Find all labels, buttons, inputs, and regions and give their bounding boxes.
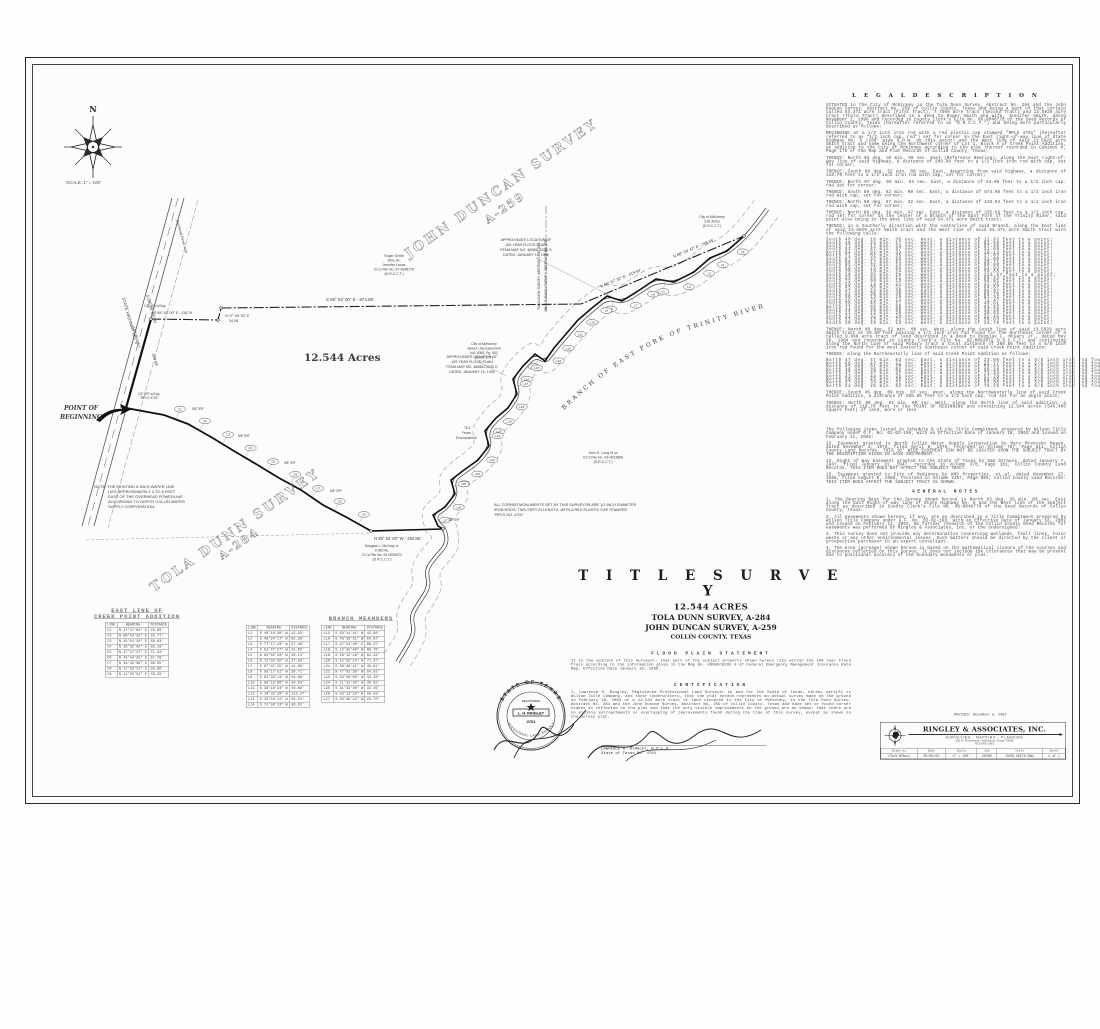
general-notes-heading: GENERAL NOTES	[826, 489, 1066, 494]
table-cell: S 81°32'14" W	[258, 675, 290, 681]
table-cell: N 45°01'20" E	[117, 639, 149, 645]
table-cell: N 84°02'33" W	[258, 653, 290, 659]
line-bubble-label: C1	[178, 407, 182, 411]
table-cell: S 23°54'11" W	[258, 697, 290, 703]
addition-calls: North 47 deg. 47 min. 03 sec. East, a di…	[826, 359, 1066, 388]
map-label: N 07° 05' 53" E	[225, 314, 250, 318]
line-bubble-label: L4	[687, 285, 691, 289]
table-cell: N 21°25'52" E	[117, 672, 149, 678]
table-cell: N 36°45'38" E	[117, 661, 149, 667]
paragraph: BEGINNING at a 1/2 inch iron rod with a …	[826, 132, 1066, 154]
company-name: RINGLEY & ASSOCIATES, INC.	[907, 726, 1063, 734]
paragraph: 14. Right of Way Easement granted to the…	[826, 459, 1066, 470]
table-cell: S 48°24'17" W	[258, 636, 290, 642]
survey-sheet: L1L2L3L4L5L6L7L8L9L10L11L12L13L14L15L16L…	[25, 57, 1080, 804]
schedule-b-intro: The following items listed in Schedule B…	[826, 428, 1066, 439]
map-label: Fence	[462, 431, 471, 435]
table-row: L14S 71°59'13" W56.81'	[246, 702, 309, 708]
line-bubble-label: L11	[578, 332, 583, 336]
company-phone: 972-542-1365	[907, 742, 1063, 745]
table-cell: N 47°37'27" E	[117, 650, 149, 656]
map-label: TOLA DUNN SURVEY, ABSTRACT NO. 284	[537, 243, 541, 310]
map-label: S 89° 52' 00" E - 118.79'	[154, 311, 193, 315]
map-label: IRON RODS, TWO FEET IN LENGTH, WITH A RE…	[494, 508, 628, 512]
table-cell: N 37°33'31" E	[117, 666, 149, 672]
revision-note: REVISED: December 5, 2002	[954, 713, 1100, 721]
table-cell: N 66°43'22" E	[117, 633, 149, 639]
meander-intro: THENCE: in a Southerly direction with th…	[826, 225, 1066, 236]
meanders-table-2: LINEBEARINGDISTANCEL15S 59°14'41" W42.96…	[322, 625, 386, 708]
paragraph: 3. This survey does not provide any dete…	[826, 533, 1066, 544]
paragraph: 2. All easements shown hereon, if any, a…	[826, 515, 1066, 529]
general-notes-items: 1. The Bearing Base for the Survey shown…	[826, 498, 1066, 557]
map-label: (D.R.C.C.T.)	[703, 224, 721, 228]
line-bubble-label: L2	[721, 263, 725, 267]
table-cell: 0209-20278.DWG	[997, 753, 1043, 759]
line-bubble-label: L13	[556, 359, 561, 363]
paragraph: 15. Easement granted to City of McKinney…	[826, 473, 1066, 484]
legal-description-column: L E G A L D E S C R I P T I O N SITUATED…	[826, 92, 1066, 1029]
line-bubble-label: L17	[523, 382, 528, 386]
arrow-rule	[909, 734, 1061, 735]
map-label: 100-YEAR FLOOD PLAIN	[451, 360, 493, 364]
table-cell: S 10°32'29" W	[258, 691, 290, 697]
table-cell: S 59°14'41" W	[333, 631, 365, 637]
map-label: N 88° 57' 32" E - 419.94'	[599, 267, 641, 289]
map-label: S 89° 52' 00" E - 874.08'	[326, 297, 374, 302]
table-cell: S 34°48'00" W	[333, 675, 365, 681]
line-bubble-label: L19	[507, 420, 512, 424]
paragraph: 13. Easement granted to North Collin Wat…	[826, 442, 1066, 456]
line-bubble-label: L22	[490, 458, 495, 462]
line-bubble-label: L25	[461, 482, 466, 486]
map-label: Vol. 4083, Pg. 501	[470, 351, 498, 355]
table-cell: S 12°35'40" W	[333, 647, 365, 653]
line-bubble-label: L23	[475, 472, 480, 476]
map-label: 209.99'	[151, 353, 159, 367]
table-cell: 24.70'	[365, 697, 385, 703]
monument-marker	[220, 307, 223, 310]
schedule-b-items: 13. Easement granted to North Collin Wat…	[826, 442, 1066, 484]
map-label: 5/8" IRF	[238, 434, 250, 438]
table-row: Chris Wilson05/09/021" = 100'202080209-2…	[881, 753, 1066, 759]
line-bubble-label: C6	[293, 472, 297, 476]
map-label: POINT OF	[63, 405, 99, 412]
table-cell: S 56°17'51" W	[258, 669, 290, 675]
tract-paragraph: THENCE: North 89 deg. 52 min. 00 sec. We…	[826, 328, 1066, 350]
map-label: BEGINNING	[59, 414, 102, 421]
paragraph: 4. The area (acreage) shown hereon is ba…	[826, 547, 1066, 558]
line-bubble-label: L12	[566, 346, 571, 350]
map-label: "RPLS 4701"	[140, 396, 159, 400]
map-label: Jennifer Lucas	[383, 263, 406, 267]
paragraph: THENCE: North 88 deg. 34 min. 47 sec. Ea…	[826, 211, 1066, 222]
map-label: City of McKinney	[699, 215, 725, 219]
metes-call: North 21 deg. 25 min. 52 sec. East, a di…	[826, 385, 1066, 388]
table-cell: S 53°47'57" W	[258, 647, 290, 653]
table-cell: N 72°02'35" W	[258, 658, 290, 664]
map-label: 9.969 Ac.	[375, 549, 390, 553]
monument-marker	[442, 528, 445, 531]
line-bubble-label: L5	[662, 289, 666, 293]
line-bubble-label: C9	[362, 513, 366, 517]
map-label: 76.1'	[464, 426, 471, 430]
table-cell: N 47°47'03" E	[117, 628, 149, 634]
north-label: N	[89, 104, 96, 114]
paragraph: THENCE: North 89 deg. 52 min. 00 sec. We…	[826, 401, 1066, 412]
river-label: BRANCH OF EAST FORK OF TRINITY RIVER	[561, 302, 767, 411]
line-bubble-label: L3	[708, 271, 712, 275]
line-bubble-label: L9	[605, 309, 609, 313]
monument-marker	[217, 319, 220, 322]
compass-rose: N SCALE: 1" = 100'	[64, 104, 122, 185]
table-cell: S 40°16'38" W	[258, 631, 290, 637]
table-cell: S 31°32'20" W	[333, 686, 365, 692]
table-cell: C9	[105, 672, 117, 678]
meanders-table-1: LINEBEARINGDISTANCEL1S 40°16'38" W12.93'…	[246, 625, 310, 708]
map-label: 5/8" IRF	[192, 407, 204, 411]
map-label: 12.544 Acres	[304, 352, 381, 364]
table-cell: S 56°12'19" W	[333, 653, 365, 659]
map-label: CC's File No. 92-0092872	[362, 553, 402, 557]
paragraph: THENCE: North 07 deg. 05 min. 53 sec. Ea…	[826, 180, 1066, 187]
map-label: City of McKinney	[471, 342, 497, 346]
map-label: 34.08'	[229, 319, 239, 323]
closing-paragraphs: THENCE: South 45 deg. 09 min. 07 sec. We…	[826, 391, 1066, 412]
table-cell: 56.81'	[289, 702, 309, 708]
acreage-title: 12.544 ACRES	[571, 602, 851, 612]
map-label: Sewer Line Easement	[467, 347, 500, 351]
line-bubble-label: L7	[634, 303, 638, 307]
line-bubble-label: L10	[590, 320, 595, 324]
table-cell: 20208	[977, 753, 997, 759]
table-cell: S 15°25'14" W	[333, 658, 365, 664]
table-row: L27S 29°49'12" W24.70'	[322, 697, 385, 703]
branch-meanders-title: BRANCH MEANDERS	[246, 616, 476, 622]
line-bubble-label: L15	[534, 366, 539, 370]
table-cell: S 87°37'25" W	[258, 664, 290, 670]
column-header: LINE	[105, 622, 117, 628]
map-label: SUPPLY CORPORATION.	[108, 504, 155, 509]
map-label: 3.81 Acres	[704, 220, 720, 224]
branch-meanders-block: BRANCH MEANDERS LINEBEARINGDISTANCEL1S 4…	[246, 616, 706, 800]
map-label: FEMA MAP NO. 48085C0235 G	[446, 365, 497, 369]
paragraph: THENCE: North 03 deg. 35 min. 09 sec. Ea…	[826, 156, 1066, 167]
table-cell: S 38°46'21" W	[333, 664, 365, 670]
table-cell: L27	[322, 697, 334, 703]
table-cell: S 43°30'51" W	[333, 636, 365, 642]
line-bubble-label: C3	[226, 433, 230, 437]
table-row: C9N 21°25'52" E78.26'	[105, 672, 168, 678]
meander-calls: South 40 deg. 16 min. 38 sec. West, a di…	[826, 239, 1066, 325]
column-header: DISTANCE	[289, 625, 309, 631]
line-bubble-label: C8	[338, 499, 342, 503]
line-bubble-label: L1	[741, 250, 745, 254]
table-cell: Chris Wilson	[881, 753, 917, 759]
map-label: (D.R.C.C.T.)	[372, 558, 391, 562]
map-label: 1/2" IRS w/Cap	[144, 304, 166, 308]
table-cell: N 77°02'39" W	[333, 669, 365, 675]
south-boundary	[371, 529, 443, 531]
map-label: 5/8" IRF	[284, 461, 296, 465]
legal-paragraphs: SITUATED in the City of McKinney in the …	[826, 104, 1066, 222]
addition-intro: THENCE: along the Northeasterly line of …	[826, 353, 1066, 357]
monument-marker	[743, 235, 746, 238]
paragraph: THENCE: South 45 deg. 09 min. 07 sec. We…	[826, 391, 1066, 398]
map-label: (D.R.C.C.T.)	[384, 272, 403, 276]
east-line-table: LINEBEARINGDISTANCEC1N 47°47'03" E23.90'…	[82, 622, 192, 678]
paragraph: THENCE: South 89 deg. 52 min. 00 sec. Ea…	[826, 191, 1066, 198]
line-bubble-label: C5	[271, 460, 275, 464]
table-cell: N 43°44'25" E	[117, 655, 149, 661]
table-cell: S 53°13'22" W	[333, 691, 365, 697]
table-cell: S 71°59'13" W	[258, 702, 290, 708]
map-label: JOHN DUNCAN SURVEY, ABSTRACT NO. 259	[544, 240, 548, 312]
line-bubble-label: C7	[316, 487, 320, 491]
table-cell: S 47°24'40" E	[333, 642, 365, 648]
scale-label: SCALE: 1" = 100'	[66, 180, 101, 185]
paragraph: THENCE: North 88 deg. 57 min. 32 sec. Ea…	[826, 201, 1066, 208]
legal-description-heading: L E G A L D E S C R I P T I O N	[826, 92, 1066, 99]
sheet-title: T I T L E S U R V E Y	[571, 568, 851, 599]
line-bubble-label: L21	[495, 434, 500, 438]
map-label: Douglas L. McGary Jr.	[365, 544, 400, 548]
table-cell: 1 of 1	[1043, 753, 1066, 759]
map-label: Encroachment	[456, 436, 477, 440]
company-logo	[884, 724, 907, 747]
column-header: LINE	[246, 625, 258, 631]
line-bubble-label: C2	[203, 419, 207, 423]
table-cell: N 36°35'02" E	[117, 644, 149, 650]
north-boundary	[151, 236, 744, 320]
metes-call: South 29 deg. 49 min. 12 sec. West, a di…	[826, 322, 1066, 325]
line-bubble-label: L18	[519, 405, 524, 409]
table-cell: S 77°17'43" W	[258, 642, 290, 648]
map-label: CC's File No. 97-0098175	[374, 268, 414, 272]
paragraph: THENCE: South 89 deg. 52 min. 00 sec. Ea…	[826, 170, 1066, 177]
map-label: 1/2" IRF	[448, 518, 460, 522]
table-cell: 05/09/02	[917, 753, 945, 759]
table-cell: 78.26'	[149, 672, 169, 678]
map-label: CC's File No. 93-0023886	[583, 456, 623, 460]
table-cell: L14	[246, 702, 258, 708]
company-title-block: RINGLEY & ASSOCIATES, INC. SURVEYING - M…	[880, 722, 1100, 797]
monument-marker	[370, 530, 373, 533]
map-label: N 89° 52' 00" W - 260.85'	[374, 536, 421, 541]
east-line-title-2: CREEK POINT ADDITION	[82, 614, 192, 620]
table-cell: S 58°15'06" W	[258, 680, 290, 686]
drawing-info-table: Drawn byDateScaleJobTitleSheetChris Wils…	[881, 748, 1066, 759]
map-label: ALL CORNER MONUMENTS SET BY THIS SURVEYO…	[494, 503, 637, 507]
table-cell: 113.57'	[289, 691, 309, 697]
column-header: DISTANCE	[365, 625, 385, 631]
map-label: "RPLS NO. 4701"	[494, 513, 525, 517]
table-cell: 1" = 100'	[946, 753, 977, 759]
map-label: (D.R.C.C.T.)	[475, 356, 493, 360]
line-bubble-label: C4	[249, 446, 253, 450]
map-label: DATED: JANUARY 19, 1996	[449, 370, 495, 374]
paragraph: SITUATED in the City of McKinney in the …	[826, 104, 1066, 129]
table-cell: S 29°49'12" W	[333, 697, 365, 703]
map-label: (D.R.C.C.T.)	[593, 460, 612, 464]
table-cell: S 11°12'20" W	[333, 680, 365, 686]
map-label: DATED: JANUARY 19, 1996	[503, 253, 549, 257]
paragraph: 1. The Bearing Base for the Survey shown…	[826, 498, 1066, 512]
road-centerline	[88, 198, 178, 526]
map-label: John E. Long et ux	[588, 451, 617, 455]
line-bubble-label: L26	[456, 505, 461, 509]
line-bubble-label: L6	[651, 292, 655, 296]
table-cell: S 38°18'24" W	[258, 686, 290, 692]
map-label: 5/8" IRF	[330, 489, 342, 493]
map-label: 160± Ac.	[387, 259, 401, 263]
map-label: Overhead Power Line	[175, 219, 188, 254]
map-label: N 88° 34' 47" E - 235.56'	[672, 237, 714, 259]
column-header: DISTANCE	[149, 622, 169, 628]
map-label: Roger Smith	[384, 254, 404, 258]
